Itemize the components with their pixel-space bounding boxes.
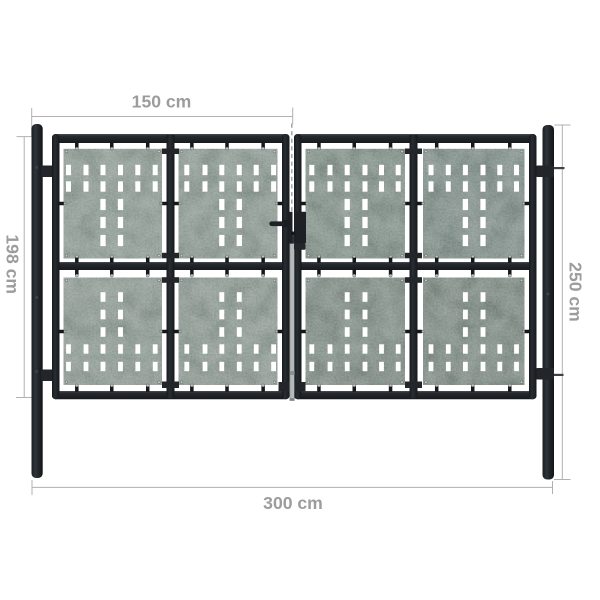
svg-text:250 cm: 250 cm <box>565 262 585 322</box>
svg-text:300 cm: 300 cm <box>263 493 323 513</box>
svg-text:150 cm: 150 cm <box>132 92 192 112</box>
svg-text:198 cm: 198 cm <box>3 234 23 294</box>
